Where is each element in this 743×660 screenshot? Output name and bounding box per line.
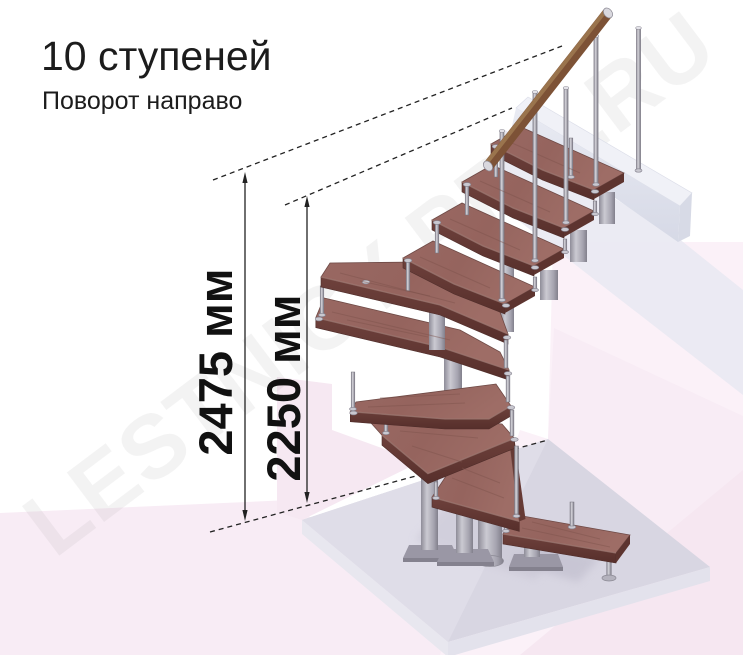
svg-text:2475 мм: 2475 мм — [189, 268, 242, 455]
svg-text:2250 мм: 2250 мм — [257, 294, 310, 481]
